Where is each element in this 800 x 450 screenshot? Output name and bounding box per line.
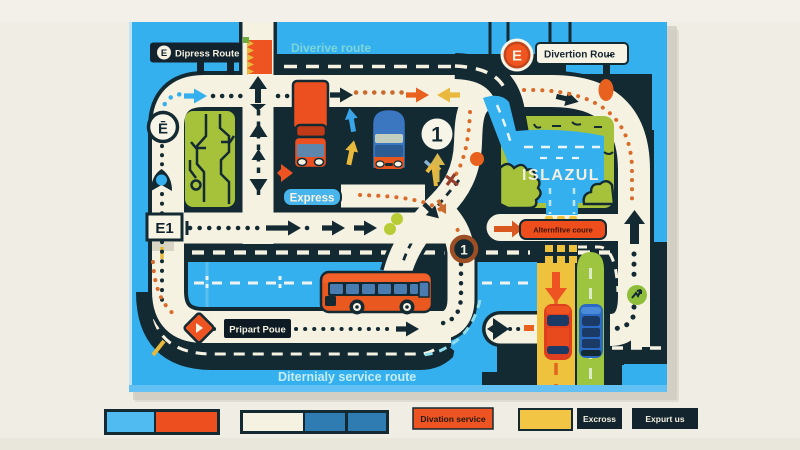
svg-text:E: E <box>161 48 167 59</box>
svg-text:Divertion Rou̶e: Divertion Rou̶e <box>544 50 616 61</box>
svg-text:Divation service: Divation service <box>420 414 485 424</box>
svg-text:Express: Express <box>290 193 335 205</box>
svg-text:Excross: Excross <box>583 414 616 424</box>
svg-text:Alternfitve coure: Alternfitve coure <box>533 226 593 235</box>
svg-text:Diternialy service route: Diternialy service route <box>278 370 416 384</box>
svg-text:E1: E1 <box>155 220 173 237</box>
svg-text:ISLAZUL: ISLAZUL <box>522 167 600 184</box>
svg-text:E: E <box>512 48 522 65</box>
svg-text:Ē: Ē <box>158 121 168 138</box>
svg-text:Expurt us: Expurt us <box>645 414 684 424</box>
svg-text:Diverive route: Diverive route <box>291 41 371 55</box>
svg-text:1: 1 <box>431 124 443 147</box>
svg-text:Pripart Poue: Pripart Poue <box>229 325 286 336</box>
svg-text:1: 1 <box>460 243 468 258</box>
svg-text:Dipress Route: Dipress Route <box>175 49 239 60</box>
